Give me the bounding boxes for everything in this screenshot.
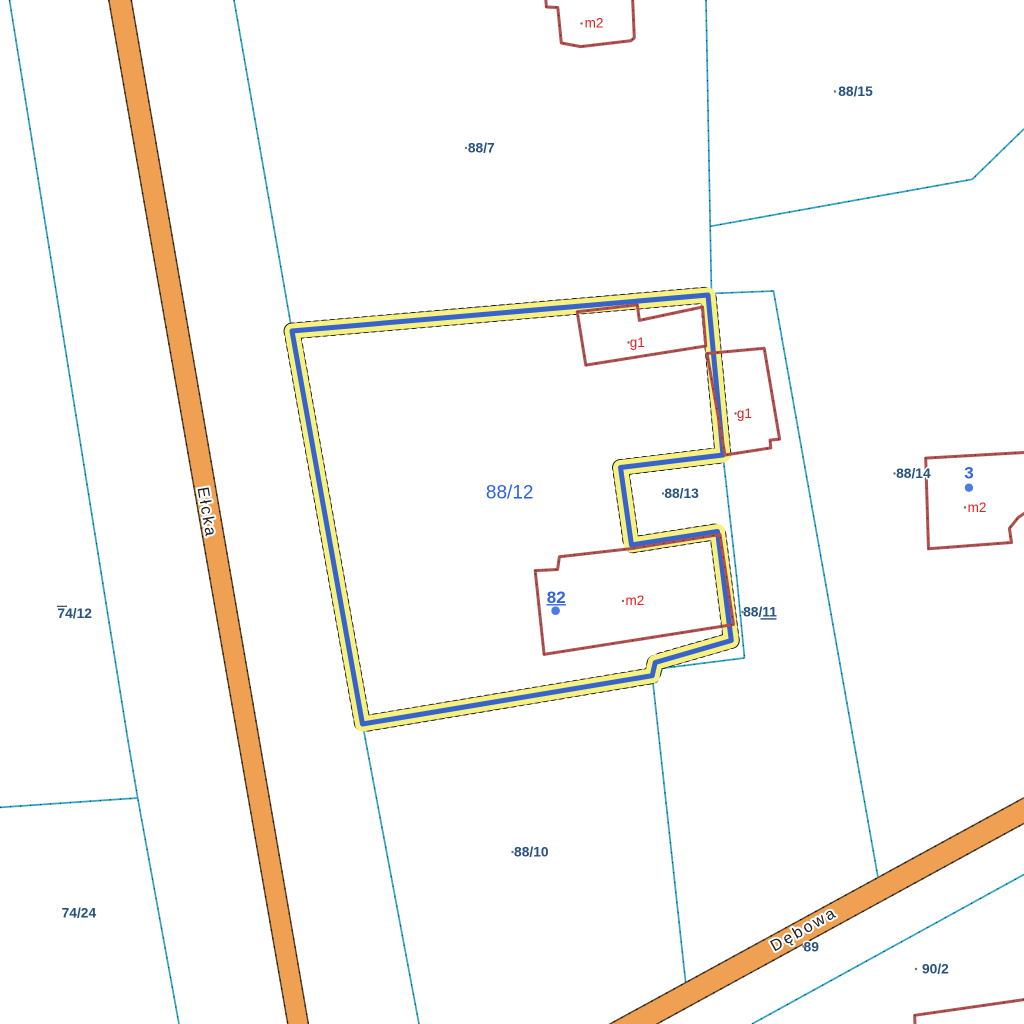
svg-text:90/2: 90/2 (922, 962, 949, 977)
svg-text:m2: m2 (626, 593, 645, 608)
svg-text:74/24: 74/24 (62, 906, 97, 921)
svg-text:88/10: 88/10 (514, 845, 549, 860)
svg-text:88/15: 88/15 (838, 84, 873, 99)
svg-text:88/11: 88/11 (743, 605, 777, 620)
svg-text:m2: m2 (968, 500, 987, 515)
svg-text:88/12: 88/12 (486, 483, 534, 504)
svg-text:89: 89 (804, 939, 820, 954)
svg-text:88/13: 88/13 (664, 486, 699, 501)
svg-text:74/12: 74/12 (57, 606, 92, 621)
svg-text:88/14: 88/14 (896, 466, 931, 481)
svg-text:g1: g1 (737, 406, 752, 421)
svg-text:82: 82 (547, 588, 566, 607)
svg-text:g1: g1 (630, 335, 645, 350)
svg-text:m2: m2 (585, 16, 604, 31)
svg-text:3: 3 (964, 464, 973, 483)
svg-text:88/7: 88/7 (468, 140, 495, 155)
